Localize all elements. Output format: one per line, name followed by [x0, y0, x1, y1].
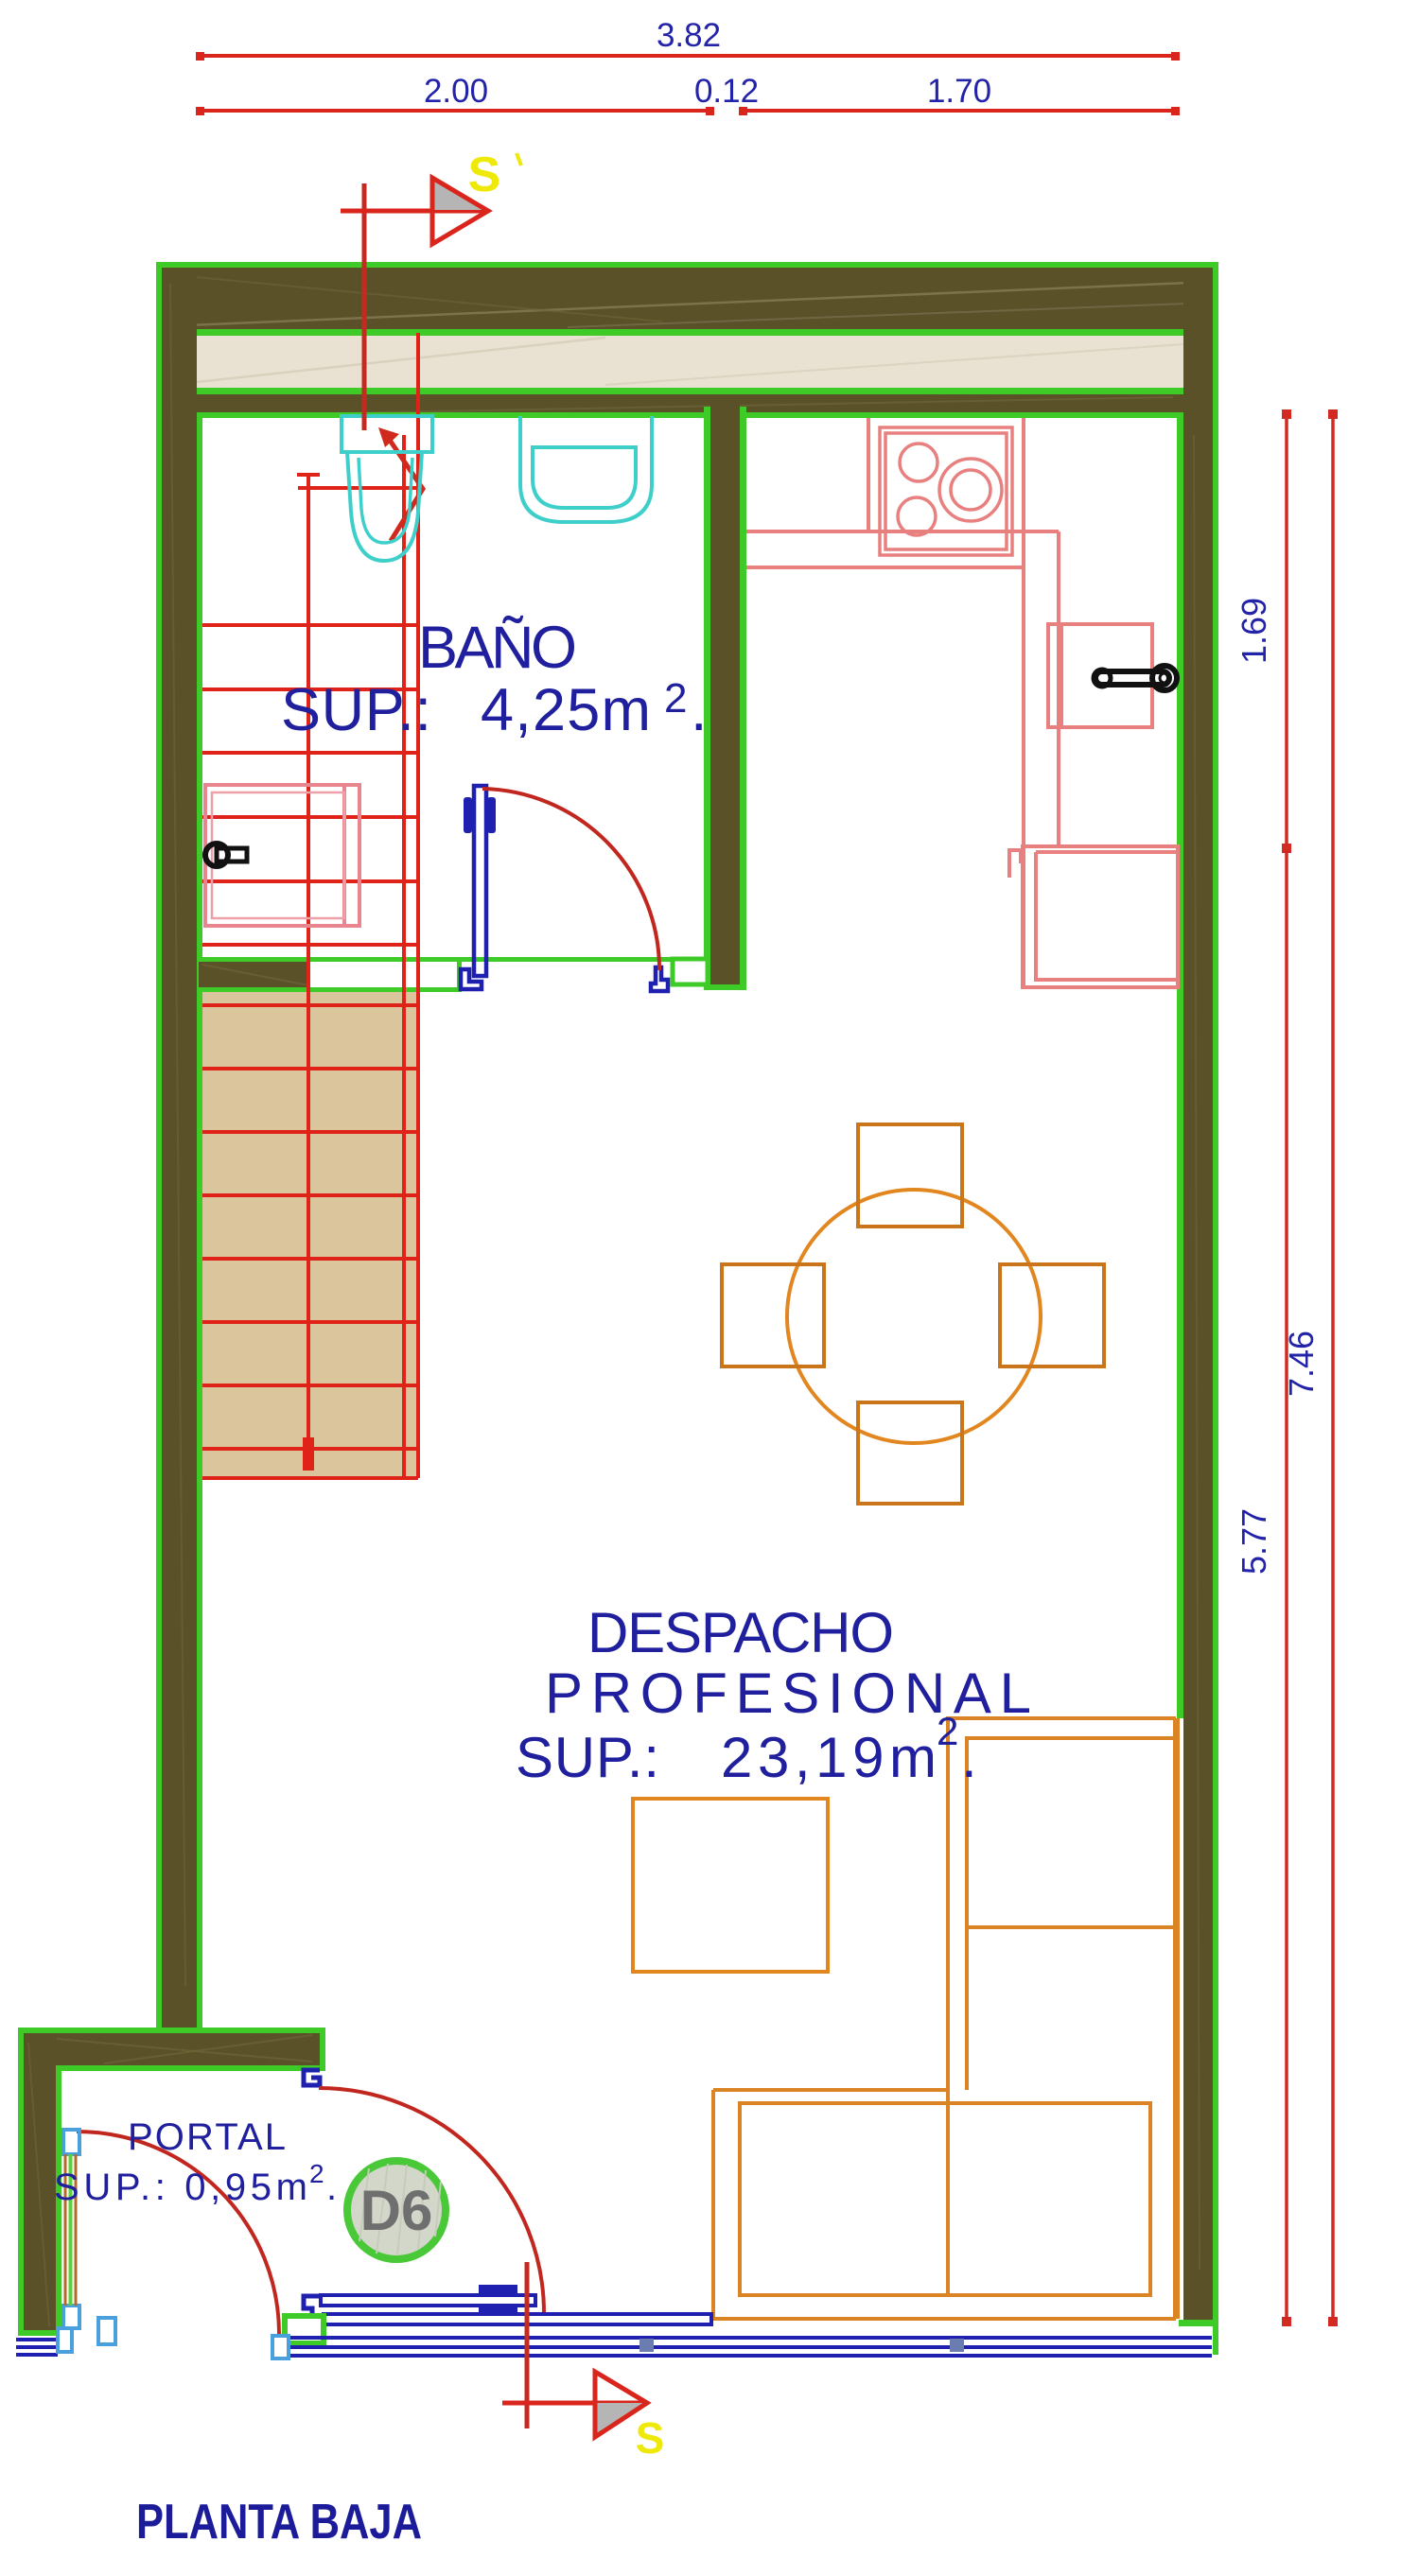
svg-text:2.00: 2.00	[424, 73, 488, 110]
svg-text:D6: D6	[360, 2179, 433, 2242]
svg-text:1.69: 1.69	[1235, 598, 1273, 664]
svg-text:SUP.:: SUP.:	[516, 1726, 659, 1789]
svg-text:DESPACHO: DESPACHO	[587, 1601, 894, 1664]
svg-text:0.12: 0.12	[694, 73, 759, 110]
svg-text:PLANTA BAJA: PLANTA BAJA	[136, 2495, 422, 2550]
svg-text:BAÑO: BAÑO	[418, 615, 577, 681]
svg-text:S: S	[636, 2413, 665, 2463]
svg-text:.: .	[961, 1726, 977, 1789]
svg-text:5.77: 5.77	[1235, 1508, 1273, 1575]
svg-text:7.46: 7.46	[1282, 1331, 1321, 1397]
svg-text:PORTAL: PORTAL	[128, 2116, 286, 2158]
svg-text:2: 2	[309, 2159, 324, 2188]
svg-text:.: .	[326, 2167, 337, 2208]
svg-text:2: 2	[664, 675, 687, 722]
svg-text:3.82: 3.82	[657, 17, 721, 54]
svg-text:SUP.:: SUP.:	[281, 677, 431, 743]
svg-text:.: .	[691, 677, 708, 743]
svg-text:2: 2	[937, 1709, 958, 1753]
svg-text:S: S	[468, 148, 501, 202]
svg-text:4,25m: 4,25m	[481, 677, 651, 743]
svg-text:1.70: 1.70	[927, 73, 991, 110]
